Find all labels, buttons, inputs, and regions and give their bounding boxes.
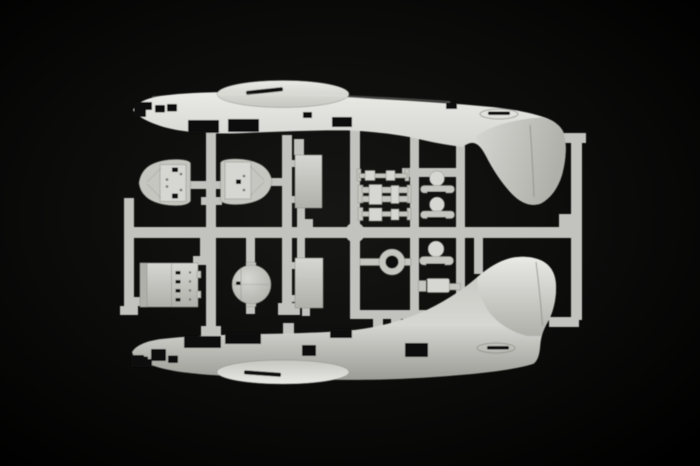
waist-window — [405, 343, 428, 357]
runner-stub — [302, 308, 310, 316]
keel-opening — [330, 329, 352, 338]
nose-cutout — [134, 109, 146, 117]
mount-dome — [430, 171, 445, 186]
mount-shadow — [426, 264, 445, 267]
bulkhead-slot — [176, 289, 181, 293]
hull-left-slot — [172, 168, 178, 173]
runner-a-top — [206, 131, 216, 227]
bulkhead-slot — [176, 298, 181, 302]
cylinder-gap — [426, 280, 428, 292]
cylinder-body — [427, 279, 450, 293]
keel-opening — [184, 336, 221, 348]
runner-stub — [200, 238, 210, 259]
strut-cylinder — [369, 185, 382, 205]
nose-window — [151, 349, 166, 361]
runner-corner-tab — [559, 214, 572, 228]
runner-stub — [297, 238, 305, 258]
floor-panel-bottom — [295, 258, 323, 308]
runner-d-bottom — [410, 238, 419, 319]
runner-a-foot — [201, 326, 221, 336]
hull-port — [302, 345, 316, 356]
runner-right-top — [563, 133, 586, 143]
nose-window — [168, 356, 178, 364]
bulkhead-flange — [140, 263, 147, 307]
rivet — [166, 178, 169, 181]
strut-cylinder — [369, 208, 382, 221]
cylinder-end — [419, 281, 427, 292]
keel-opening — [225, 333, 261, 344]
runner-b-edge-stub — [283, 323, 294, 335]
mount-dome — [428, 241, 444, 257]
bulkhead-slot — [176, 271, 181, 275]
cylinder-rod — [450, 284, 461, 291]
nose-window — [155, 105, 165, 113]
runner-stub — [294, 139, 304, 155]
runner-left-foot — [120, 306, 138, 315]
nose-window — [139, 357, 148, 365]
rivet — [189, 271, 191, 273]
rivet — [189, 289, 191, 291]
kit-sprue-photo — [0, 0, 700, 466]
strut-cylinder — [391, 209, 399, 220]
runner-a-crosstab — [201, 197, 222, 205]
stabilizer-slot — [487, 346, 509, 350]
nose-cutout — [134, 102, 152, 110]
keel-opening — [228, 119, 259, 132]
rivet — [243, 175, 246, 178]
mount-shadow — [427, 217, 446, 219]
strut-cylinder — [391, 186, 399, 204]
runner-e-top — [456, 146, 465, 227]
runner-right-foot — [549, 317, 579, 327]
keel-opening — [332, 117, 352, 127]
strut-sleeve — [386, 171, 395, 181]
bulkhead-tab — [197, 291, 201, 298]
mount-dome — [430, 197, 445, 212]
runner-right-vertical — [571, 143, 582, 239]
bulkhead-tab — [197, 271, 201, 278]
runner-stub — [297, 208, 305, 227]
rivet — [189, 280, 191, 282]
hull-port — [303, 112, 312, 118]
keel-opening — [188, 120, 219, 133]
mount-shadow — [427, 192, 446, 194]
runner-right-lower — [571, 238, 582, 320]
hull-left-slot — [172, 194, 178, 199]
bulkhead-panel — [140, 263, 201, 307]
runner-d-top — [410, 137, 419, 172]
nose-window — [167, 104, 177, 112]
hull-right-slot — [236, 180, 241, 185]
rivet — [243, 189, 246, 192]
rivet — [180, 189, 183, 192]
floor-panel-top — [295, 155, 322, 208]
ring-hole — [386, 256, 399, 269]
rivet — [189, 298, 191, 300]
stabilizer-slot — [488, 112, 510, 116]
disc-notch — [236, 282, 241, 286]
rivet — [166, 185, 169, 188]
rivet — [180, 173, 183, 176]
waist-window — [446, 102, 457, 109]
runner-c-bottom — [350, 238, 360, 319]
runner-stub — [246, 238, 255, 264]
runner-d-mid — [410, 172, 419, 227]
bulkhead-slot — [176, 280, 181, 284]
wing-fairing-blister — [217, 360, 349, 384]
ring-stub — [360, 259, 382, 266]
strut-sleeve — [365, 171, 375, 181]
runner-fin-stub — [474, 238, 483, 274]
